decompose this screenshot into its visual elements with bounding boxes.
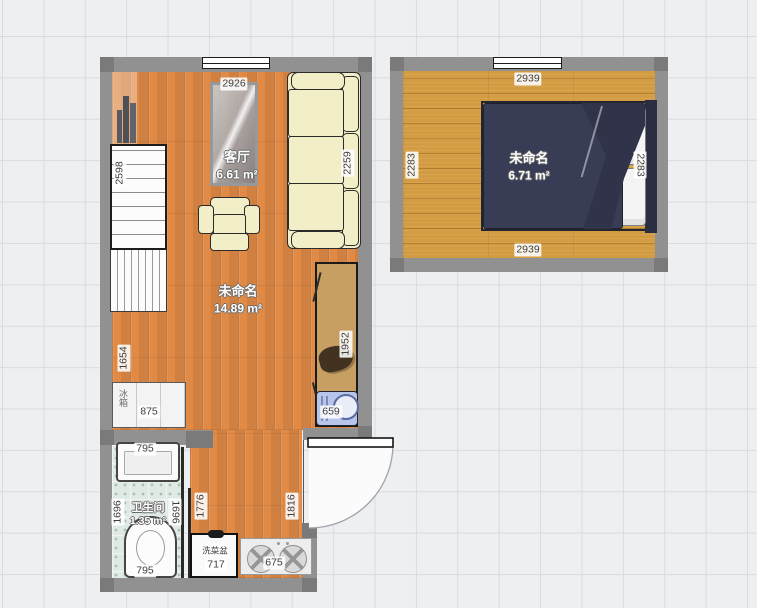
sink-cabinet-label: 洗菜盆 [200, 545, 230, 558]
stairs-lower-flight[interactable] [110, 250, 167, 312]
dim-main-left: 1654 [118, 344, 131, 371]
entry-door[interactable] [300, 431, 402, 535]
knob-icon [277, 542, 280, 545]
dim-bedroom-right: 2283 [634, 151, 647, 178]
wall-bottom[interactable] [100, 578, 317, 592]
tv-icon[interactable] [123, 96, 129, 143]
dim-fridge: 875 [138, 406, 160, 419]
window-living[interactable] [202, 57, 270, 69]
dim-stove: 675 [263, 557, 285, 570]
sofa-armrest [291, 231, 345, 249]
dim-bath-left: 1696 [112, 498, 125, 525]
room-label-living: 客厅 6.61 m² [216, 147, 257, 182]
sofa-seat-cushion [288, 183, 344, 231]
wall-corner [390, 258, 404, 272]
tv-icon[interactable] [130, 103, 136, 143]
sofa-seat-cushion [288, 89, 344, 137]
tv-icon[interactable] [117, 110, 122, 143]
dim-living-left: 2598 [114, 159, 127, 186]
dim-bath-sink: 795 [134, 443, 156, 456]
dim-living-top: 2926 [220, 78, 247, 91]
wall-corner [100, 57, 114, 72]
dim-wardrobe: 1952 [340, 330, 353, 357]
armchair-armrest [244, 205, 260, 234]
faucet-icon [208, 530, 224, 538]
armchair-armrest [198, 205, 214, 234]
sofa-seat-cushion [288, 136, 344, 184]
room-label-bedroom: 未命名 6.71 m² [508, 148, 549, 183]
wall-corner [654, 57, 668, 71]
dim-toilet: 795 [134, 565, 156, 578]
dim-kitchen-left: 1776 [195, 492, 208, 519]
door-swing-area [309, 444, 393, 528]
window-bedroom[interactable] [493, 57, 562, 69]
fridge-label: 冰箱 [117, 389, 130, 407]
wall-corner [654, 258, 668, 272]
bedroom-wall-bottom[interactable] [390, 258, 668, 272]
dim-sink-cabinet: 717 [205, 559, 227, 572]
knob-icon [286, 542, 289, 545]
wall-corner [100, 430, 114, 445]
wall-corner [358, 57, 372, 72]
wall-corner [186, 431, 213, 448]
sofa-armrest [291, 72, 345, 90]
room-label-bathroom: 卫生间 1.35 m² [130, 499, 166, 527]
dim-bath-right: 1696 [169, 498, 182, 525]
wall-corner [390, 57, 404, 71]
wall-corner [302, 578, 317, 592]
dim-washer: 659 [320, 406, 342, 419]
armchair[interactable] [198, 196, 261, 252]
dim-bedroom-top: 2939 [514, 73, 541, 86]
bed-headboard [645, 100, 657, 233]
door-leaf[interactable] [308, 438, 393, 447]
room-label-main: 未命名 14.89 m² [214, 281, 262, 316]
armchair-front-cushion [210, 233, 249, 251]
dim-bedroom-bottom: 2939 [514, 244, 541, 257]
dim-sofa: 2259 [342, 149, 355, 176]
wall-corner [100, 578, 114, 592]
dim-bedroom-left: 2283 [406, 151, 419, 178]
dim-kitchen-right: 1816 [286, 492, 299, 519]
floorplan-canvas: 冰箱 客厅 6.61 m² [0, 0, 757, 608]
toilet-bowl [136, 530, 165, 566]
bedroom-wall-left[interactable] [390, 57, 403, 272]
wall-left[interactable] [100, 57, 112, 592]
